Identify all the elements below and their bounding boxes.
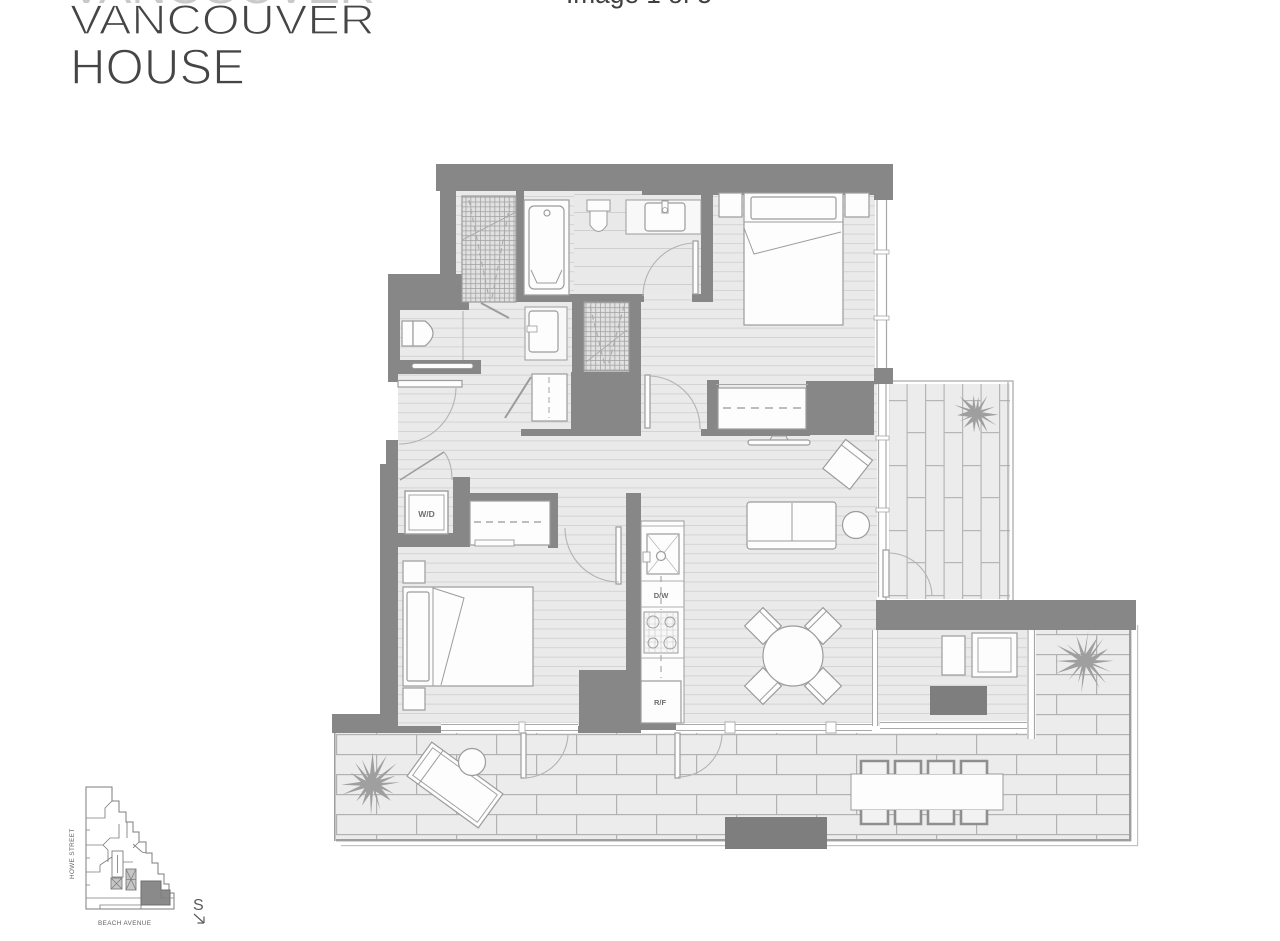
svg-text:HOWE STREET: HOWE STREET <box>69 828 76 879</box>
svg-text:W/D: W/D <box>418 509 435 519</box>
svg-text:R/F: R/F <box>654 698 667 707</box>
svg-text:Image 1 of 5: Image 1 of 5 <box>566 0 712 9</box>
svg-text:VANCOUVER: VANCOUVER <box>70 0 375 43</box>
svg-text:BEACH AVENUE: BEACH AVENUE <box>98 920 151 927</box>
svg-text:HOUSE: HOUSE <box>70 39 245 95</box>
svg-text:S: S <box>193 897 204 914</box>
